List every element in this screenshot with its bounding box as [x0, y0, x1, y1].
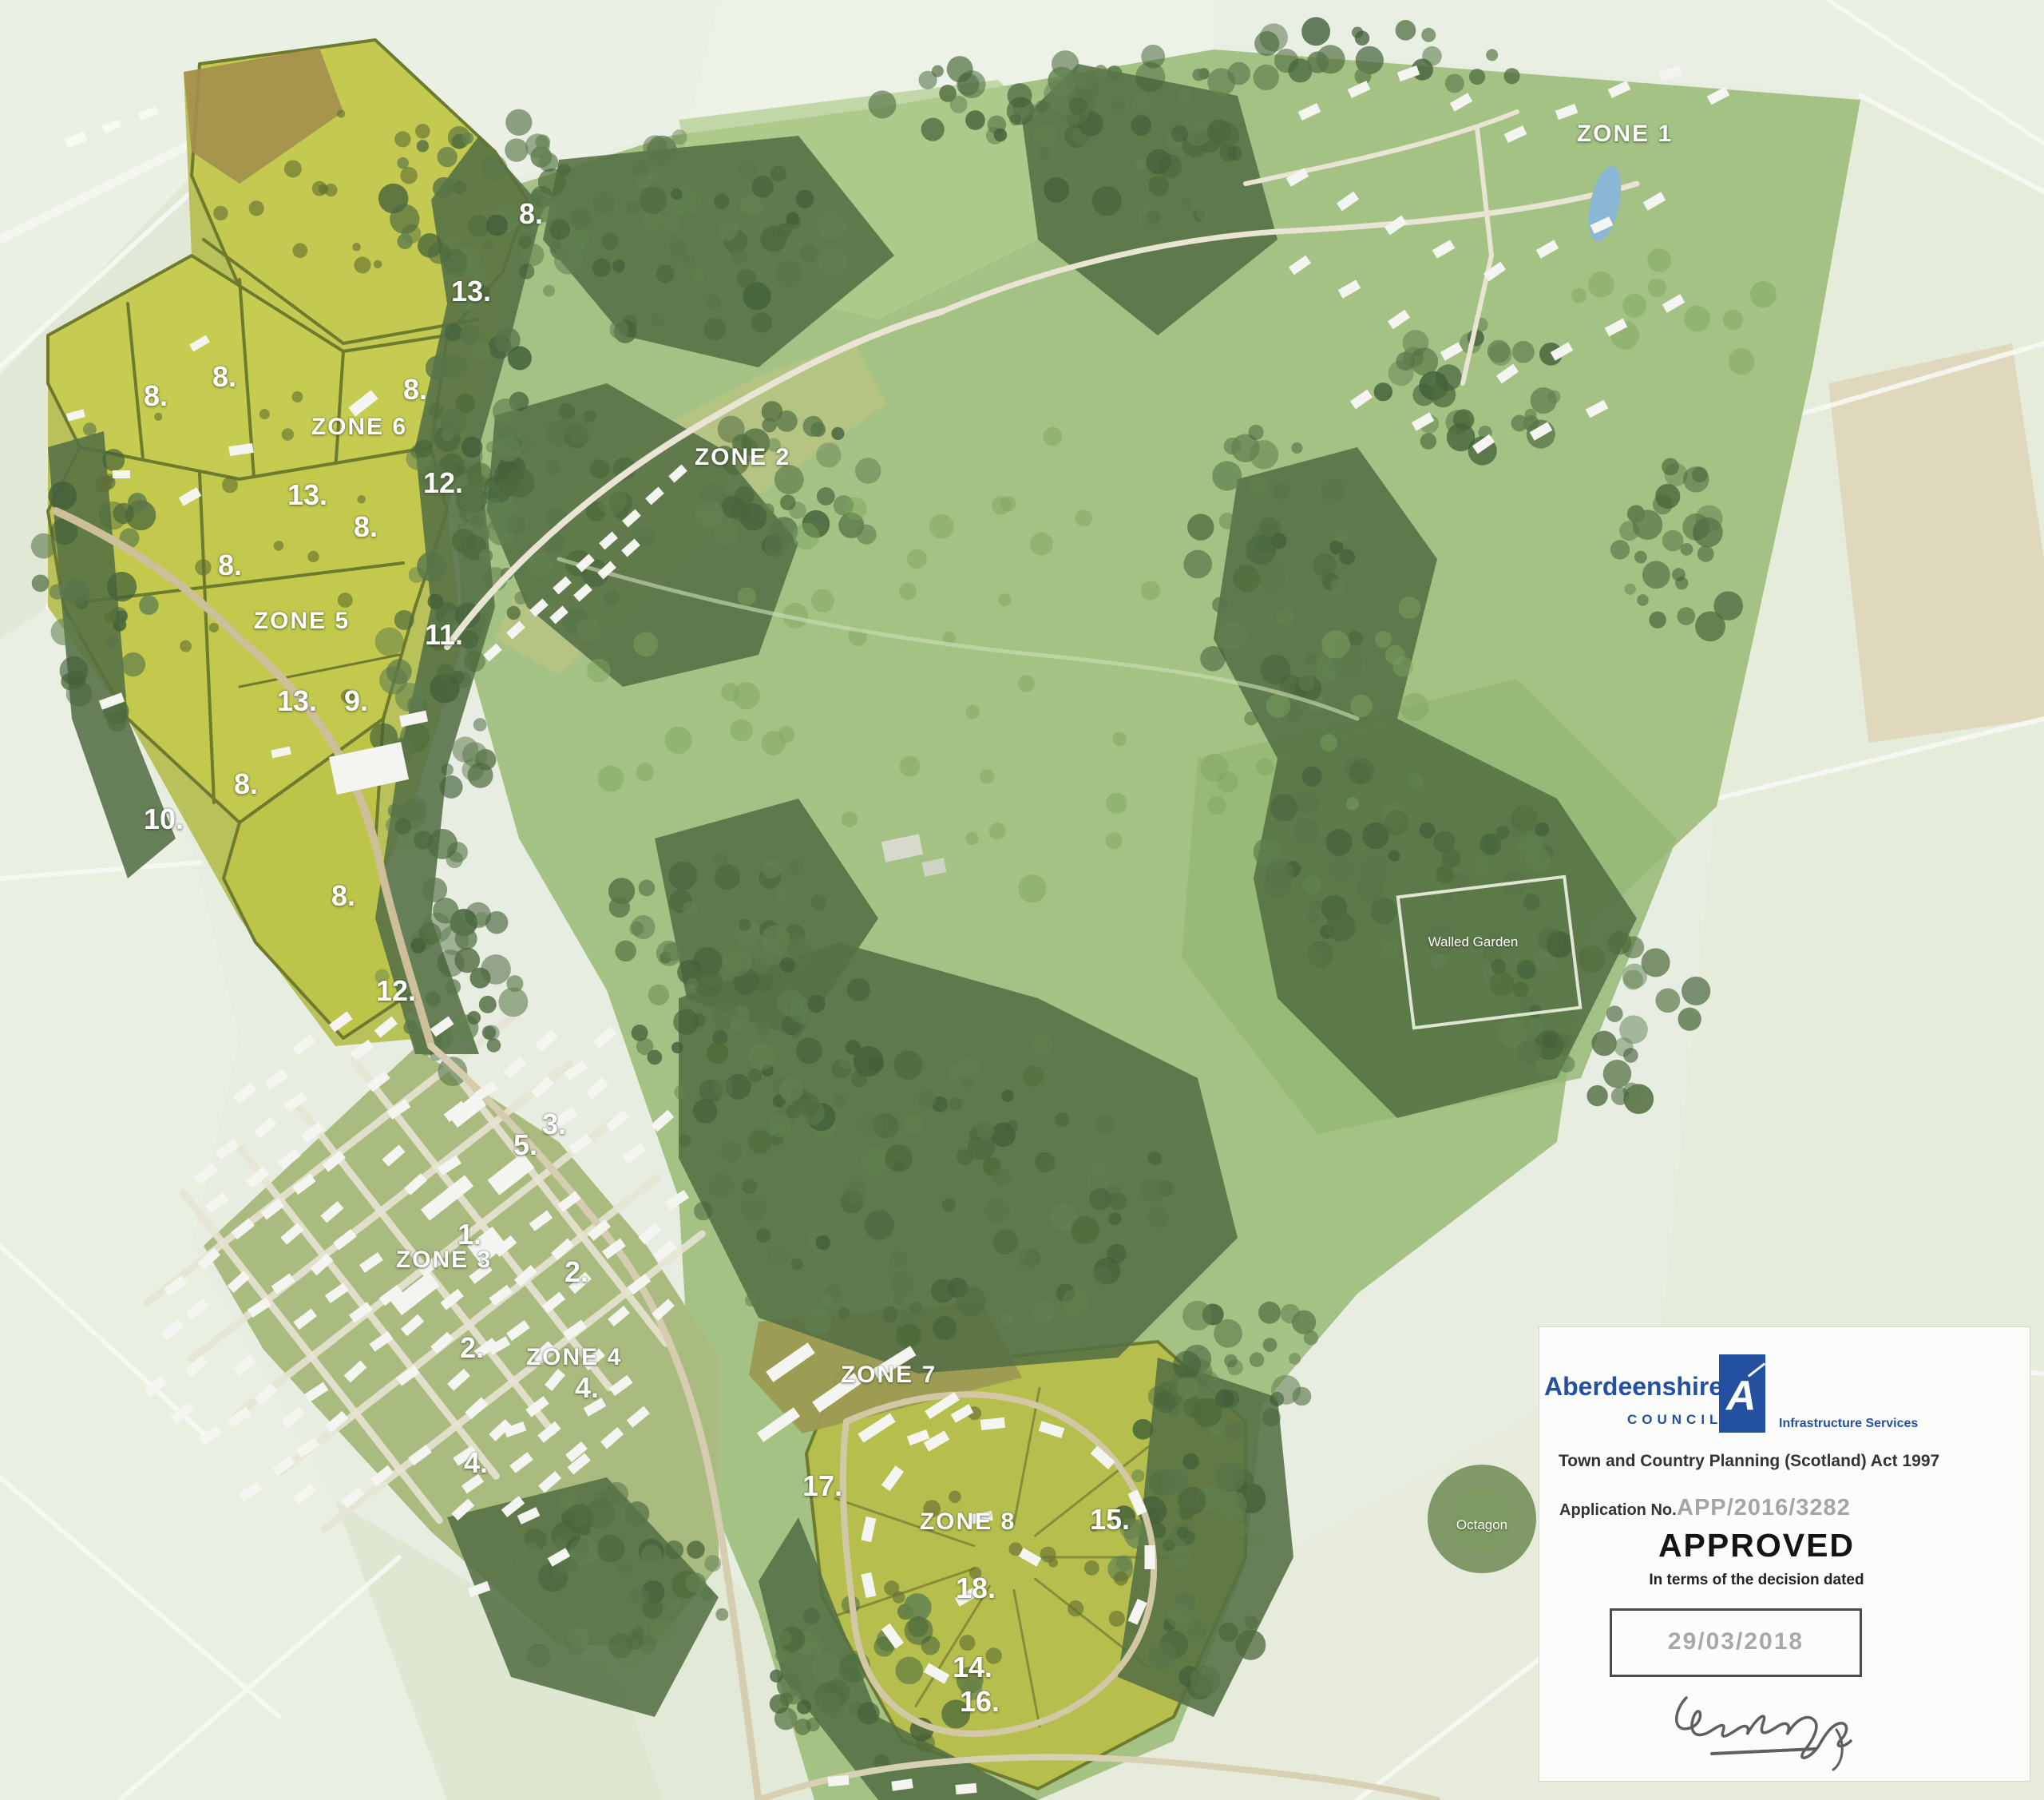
- signature: [1659, 1683, 1891, 1773]
- application-number: APP/2016/3282: [1677, 1495, 1851, 1521]
- decision-line: In terms of the decision dated: [1539, 1572, 1974, 1589]
- logo-arrow-icon: [1748, 1362, 1765, 1377]
- council-logo-letter: A: [1726, 1372, 1757, 1420]
- council-logo: A: [1719, 1354, 1765, 1433]
- council-name: Aberdeenshire: [1544, 1372, 1723, 1402]
- department-name: Infrastructure Services: [1779, 1417, 1918, 1431]
- approved-status: APPROVED: [1539, 1527, 1974, 1564]
- council-word: COUNCIL: [1627, 1412, 1722, 1428]
- masterplan-page: ZONE 1ZONE 2ZONE 3ZONE 4ZONE 5ZONE 6ZONE…: [0, 0, 2044, 1800]
- application-label: Application No.: [1559, 1501, 1677, 1520]
- decision-date: 29/03/2018: [1610, 1608, 1862, 1675]
- planning-act-line: Town and Country Planning (Scotland) Act…: [1559, 1452, 1939, 1471]
- approval-stamp: Aberdeenshire COUNCIL A Infrastructure S…: [1539, 1327, 2030, 1781]
